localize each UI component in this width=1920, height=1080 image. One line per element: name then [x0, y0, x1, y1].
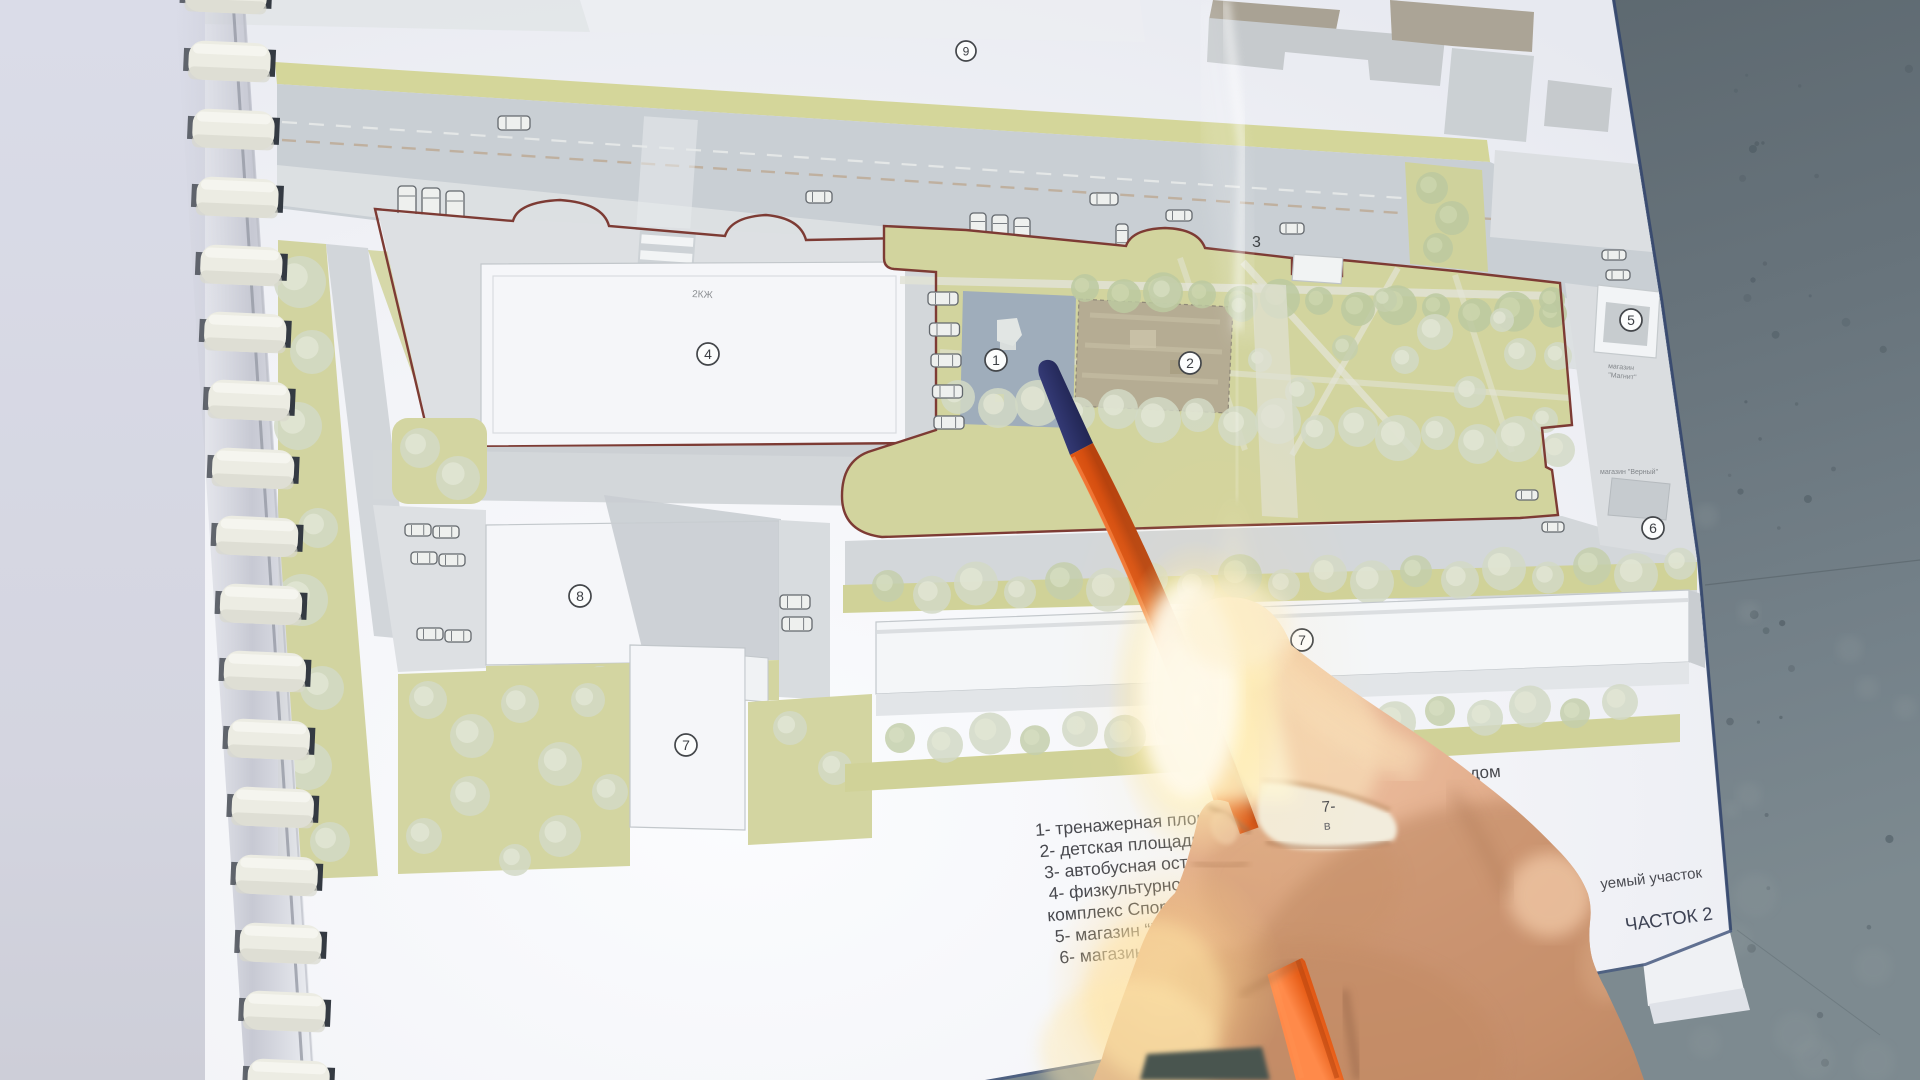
svg-text:7: 7 [682, 737, 690, 753]
svg-text:6: 6 [1649, 520, 1657, 536]
svg-text:2КЖ: 2КЖ [692, 289, 714, 301]
svg-text:9: 9 [963, 44, 970, 58]
svg-text:магазин "Верный": магазин "Верный" [1600, 468, 1659, 476]
svg-text:1: 1 [992, 352, 1000, 368]
svg-text:8: 8 [576, 588, 584, 604]
svg-text:5: 5 [1627, 312, 1635, 328]
svg-text:2: 2 [1186, 355, 1194, 371]
svg-text:4: 4 [704, 346, 712, 362]
